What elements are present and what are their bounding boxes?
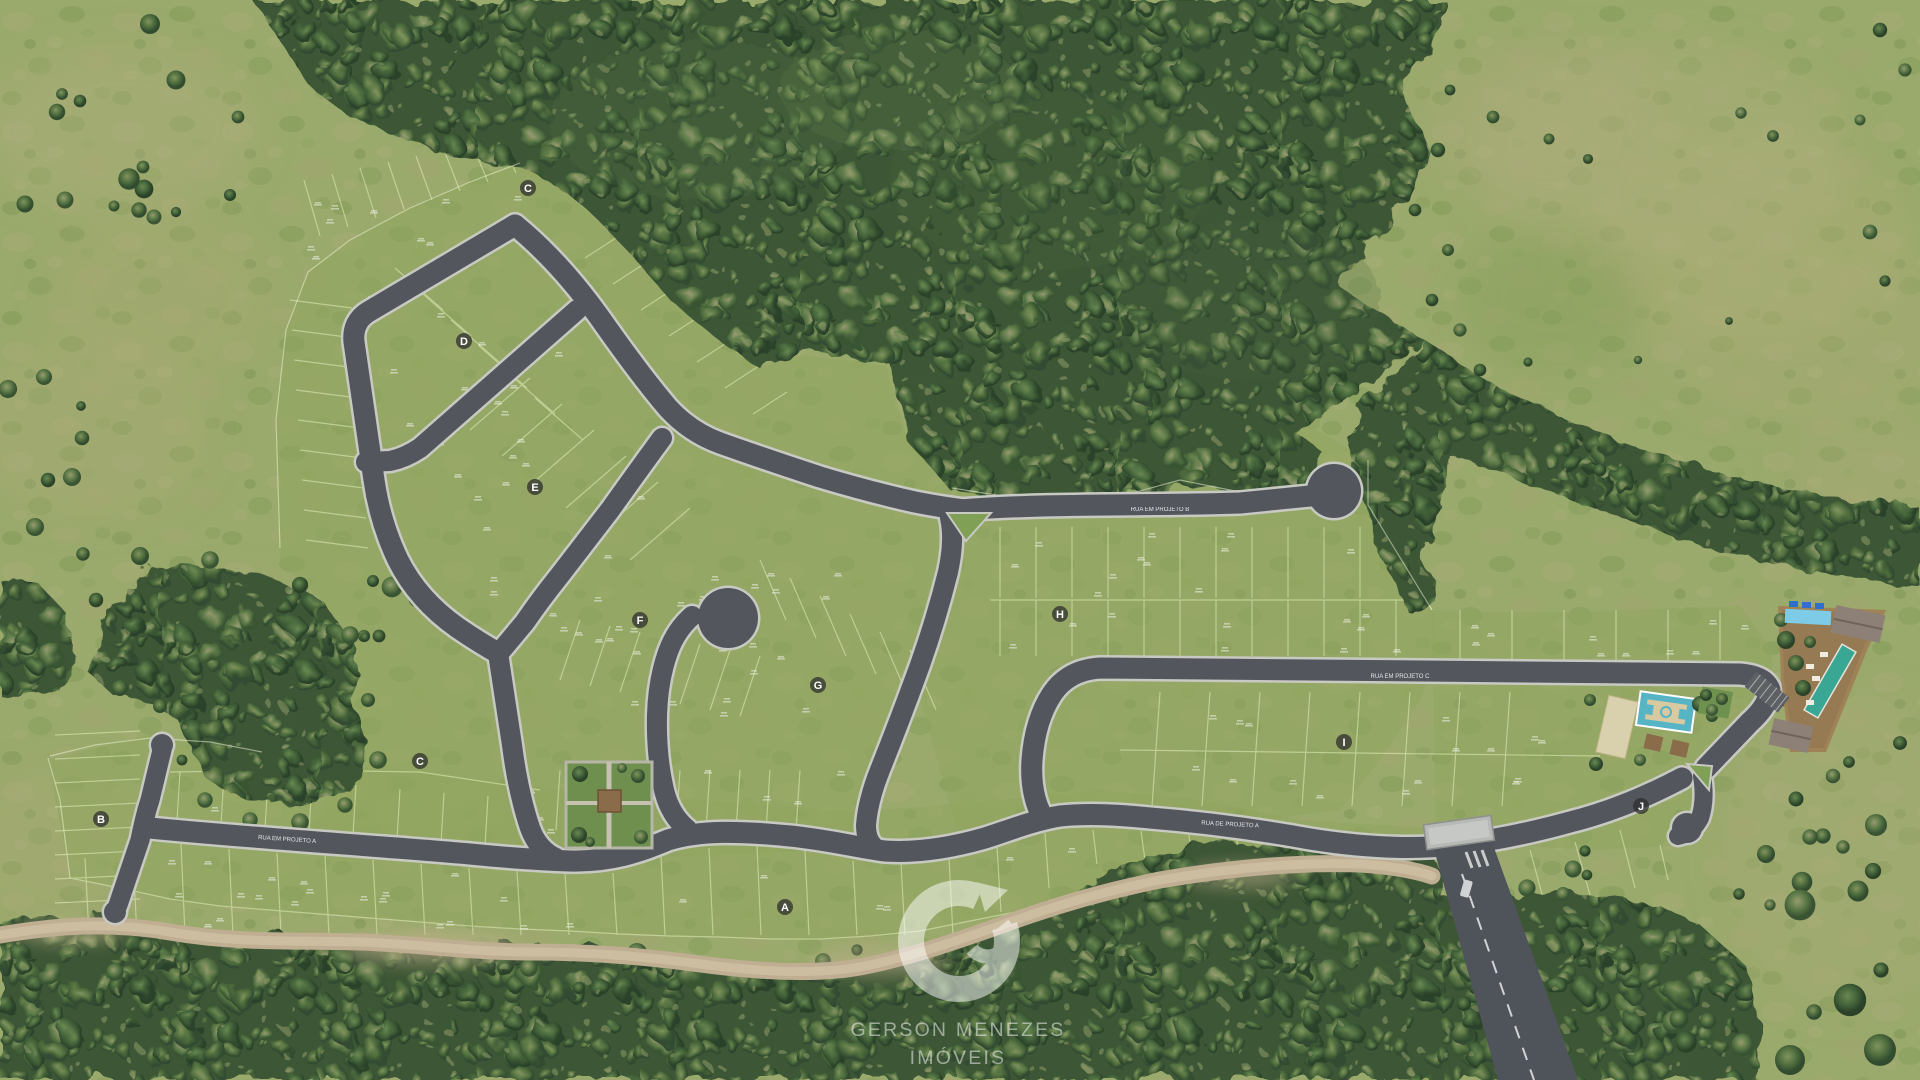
svg-text:D: D xyxy=(460,336,468,348)
svg-text:C: C xyxy=(416,756,424,768)
svg-text:RUA EM PROJETO B: RUA EM PROJETO B xyxy=(1131,507,1190,513)
svg-text:RUA EM PROJETO C: RUA EM PROJETO C xyxy=(1371,674,1431,680)
svg-text:GERSON MENEZES: GERSON MENEZES xyxy=(851,1019,1066,1041)
svg-text:G: G xyxy=(814,680,823,692)
svg-text:E: E xyxy=(531,482,538,494)
svg-text:C: C xyxy=(524,183,532,195)
svg-text:J: J xyxy=(1638,801,1644,813)
svg-text:H: H xyxy=(1056,609,1064,621)
svg-text:A: A xyxy=(781,902,789,914)
svg-text:B: B xyxy=(97,814,105,826)
svg-text:IMÓVEIS: IMÓVEIS xyxy=(910,1046,1007,1069)
svg-text:I: I xyxy=(1342,737,1345,749)
svg-text:F: F xyxy=(637,615,644,627)
